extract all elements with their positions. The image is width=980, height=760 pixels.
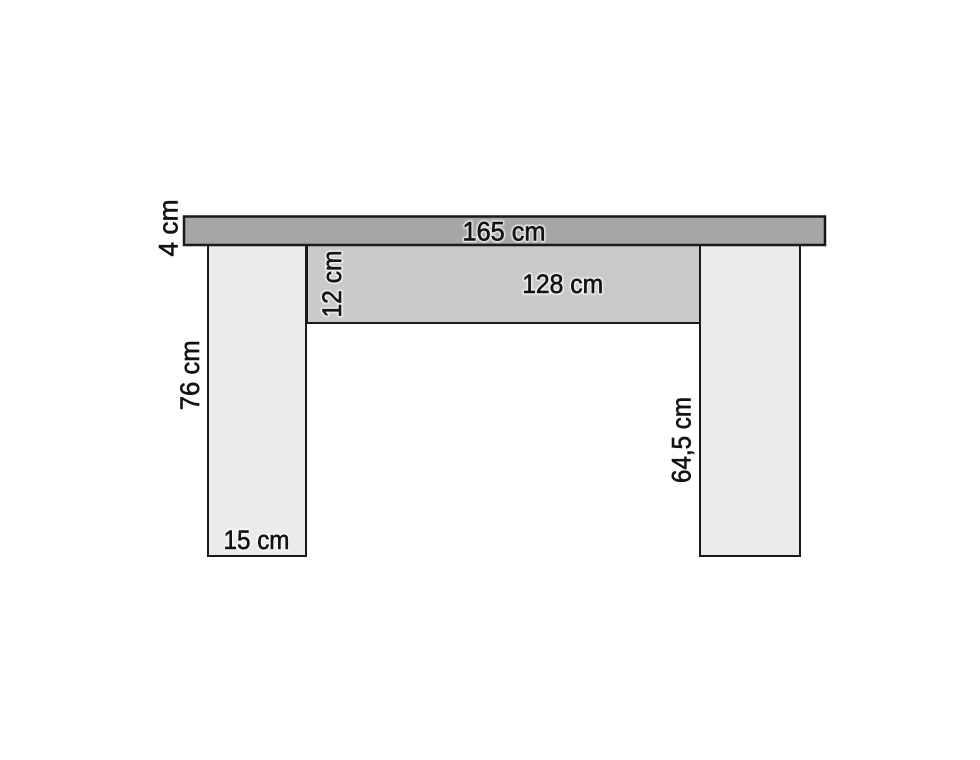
svg-text:165 cm: 165 cm (463, 216, 546, 246)
svg-text:128 cm: 128 cm (522, 269, 603, 299)
svg-text:12 cm: 12 cm (317, 251, 347, 318)
svg-text:64,5 cm: 64,5 cm (667, 397, 697, 483)
svg-text:4 cm: 4 cm (154, 200, 184, 257)
svg-text:76 cm: 76 cm (175, 340, 205, 410)
svg-text:15 cm: 15 cm (224, 525, 290, 555)
